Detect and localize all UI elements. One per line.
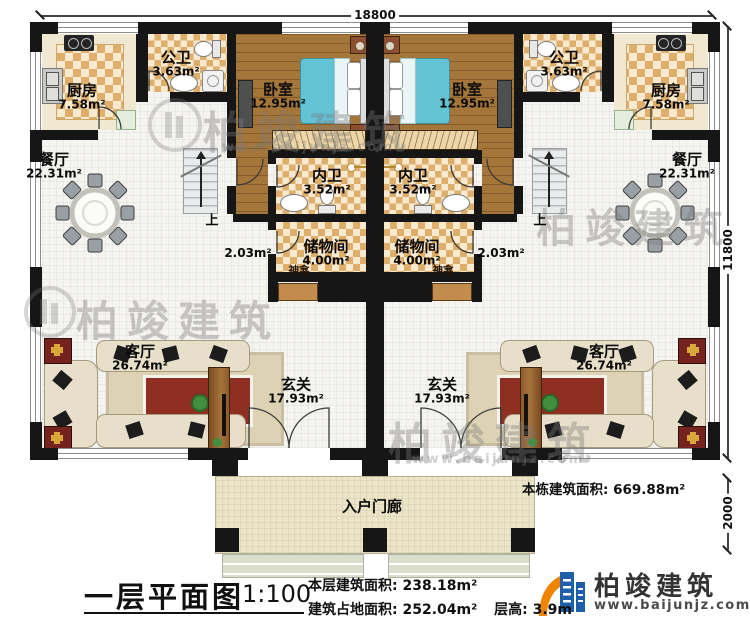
nightstand-icon [382,36,400,54]
double-door-arc [248,406,330,448]
site-area-label: 建筑占地面积: [308,602,398,618]
wall-segment [522,92,580,102]
wall-segment [268,222,276,230]
wall-segment [514,34,523,158]
wall-segment [268,272,366,282]
pillow [389,62,403,89]
porch-column [363,528,387,552]
side-table-icon [44,338,72,364]
watermark-url: www.baijunjz.com [412,452,585,467]
room-area: 26.74m² [112,360,168,373]
door-arc [450,230,474,254]
room-name: 客厅 [125,343,155,359]
door-arc [276,164,300,188]
room-area: 17.93m² [268,393,324,406]
toilet-tank [212,40,221,58]
window [30,52,42,130]
pillow [347,62,361,89]
burner-icon [68,38,79,49]
table-ornament [687,435,699,441]
entry-door-opening [248,448,330,460]
watermark-text: 柏竣建筑 [76,288,280,349]
lamp-icon [355,41,365,51]
watermark-bar [165,112,172,138]
table-ornament [51,347,63,353]
wall-segment [318,282,366,302]
wall-segment [602,34,614,102]
stairs-direction-line [200,155,202,207]
sofa-pillow [522,345,541,363]
room-name: 卧室 [452,81,482,97]
wall-segment [474,186,482,214]
wall-lamp-lead [354,166,366,168]
room-label-bedroom-right: 卧室12.95m² [439,81,495,110]
room-label-public-bath-left: 公卫3.63m² [152,49,199,78]
wall-segment [42,130,98,140]
shrine-label-right: 神龛 [433,263,454,278]
watermark-url: www.baijunjz.com [222,140,395,155]
site-area-value: 252.04m² [402,602,477,618]
tv-icon [222,394,226,436]
shrine-label-left: 神龛 [289,263,310,278]
window [58,448,188,460]
wall-segment [384,214,517,222]
door-arc [276,230,300,254]
table-ornament [687,347,699,353]
watermark-bar [40,299,47,324]
site-area-line: 建筑占地面积: 252.04m² 层高: 3.9m [308,599,572,619]
room-name: 餐厅 [672,151,702,167]
dimension-top-width: 18800 [351,8,399,22]
room-name: 储物间 [303,238,348,254]
burner-icon [658,38,669,49]
toilet-tank [318,205,336,214]
hall-area-label-left: 2.03m² [224,246,271,260]
window [612,22,692,34]
sofa-pillow [606,421,625,439]
room-name: 储物间 [394,238,439,254]
wall-party [375,22,384,460]
room-label-dining-right: 餐厅22.31m² [659,151,715,180]
window [282,22,360,34]
door-arc [236,158,264,186]
room-area: 22.31m² [26,168,82,181]
shrine-niche [278,283,318,301]
room-label-ensuite-left: 内卫3.52m² [303,167,350,196]
building-total-label: 本栋建筑面积: [522,482,608,498]
room-label-kitchen-right: 厨房7.58m² [642,82,689,111]
room-area: 12.95m² [439,98,495,111]
room-name: 公卫 [161,49,191,65]
window [390,22,468,34]
shrine-niche [432,283,472,301]
wall-segment [474,222,482,230]
room-name: 客厅 [589,343,619,359]
floor-area-label: 本层建筑面积: [308,578,398,594]
porch-label: 入户门廊 [342,496,402,517]
wall-segment [652,130,708,140]
wall-segment [227,186,236,214]
burner-icon [81,38,92,49]
sofa-pillow [52,370,72,390]
sofa-pillow [188,421,206,438]
room-label-foyer-right: 玄关17.93m² [414,376,470,405]
washbasin-icon [280,194,308,212]
porch-column [215,528,239,552]
floor-plan-canvas: 18800 11800 2000 厨房7.58m² 厨房7.58m² 公卫3.6… [0,0,750,629]
sink-bowl [691,72,704,86]
plant-icon [191,394,209,412]
story-height-value: 3.9m [533,602,572,618]
table-ornament [51,435,63,441]
room-area: 3.52m² [389,184,436,197]
room-label-bedroom-left: 卧室12.95m² [250,81,306,110]
plant-icon [213,438,222,447]
drawing-title: 一层平面图 [84,574,244,616]
kitchen-sink-icon [687,68,708,104]
door-arc [450,164,474,188]
room-area: 3.63m² [540,66,587,79]
wall-segment [472,282,482,302]
room-name: 玄关 [427,376,457,392]
stove-icon [656,35,686,51]
room-label-living-right: 客厅26.74m² [576,343,632,372]
stairs-up-label-left: 上 [205,210,218,229]
sink-bowl [691,87,704,101]
room-name: 玄关 [281,376,311,392]
sink-bowl [46,87,59,101]
tv-wall-panel [208,367,230,451]
stairs-up-arrow-icon [544,151,554,159]
porch-pilaster [362,460,388,476]
side-table-icon [678,338,706,364]
wall-segment [268,186,276,214]
room-name: 厨房 [651,82,681,98]
sofa-pillow [677,370,697,390]
room-name: 卧室 [263,81,293,97]
room-name: 餐厅 [39,151,69,167]
building-total-value: 669.88m² [613,482,685,498]
sink-bowl [46,72,59,86]
stove-icon [64,35,94,51]
wall-segment [136,34,148,102]
stairs-up-label-right: 上 [533,210,546,229]
watermark-logo-icon [24,286,76,338]
room-area: 3.52m² [303,184,350,197]
drawing-scale: 1:100 [242,580,311,608]
washbasin-icon [442,194,470,212]
hall-area-label-right: 2.03m² [477,246,524,260]
washer-icon [202,70,224,92]
company-website: www.baijunjz.com [594,598,750,613]
room-label-public-bath-right: 公卫3.63m² [540,49,587,78]
room-area: 22.31m² [659,168,715,181]
watermark-logo-icon [148,98,202,152]
window [708,52,720,130]
room-label-foyer-left: 玄关17.93m² [268,376,324,405]
wall-party [366,22,375,460]
sofa-pillow [125,421,144,439]
dining-table-set [54,172,136,254]
building-total-annotation: 本栋建筑面积: 669.88m² [522,478,685,498]
burner-icon [671,38,682,49]
room-label-kitchen-left: 厨房7.58m² [58,82,105,111]
wall-segment [233,214,366,222]
room-area: 17.93m² [414,393,470,406]
room-name: 公卫 [549,49,579,65]
wall-segment [474,158,482,164]
floor-area-line: 本层建筑面积: 238.18m² [308,575,477,595]
room-label-living-left: 客厅26.74m² [112,343,168,372]
dimension-porch-depth: 2000 [721,493,735,532]
wall-segment [384,282,432,302]
room-area: 12.95m² [250,98,306,111]
washer-door [207,75,219,87]
room-area: 7.58m² [642,99,689,112]
porch-pilaster [212,460,238,476]
room-name: 内卫 [398,167,428,183]
watermark-bar [51,303,58,324]
window [58,22,138,34]
lamp-icon [385,41,395,51]
window [30,327,42,422]
room-label-dining-left: 餐厅22.31m² [26,151,82,180]
toilet-tank [414,205,432,214]
window [708,327,720,422]
door-arc [486,158,514,186]
toilet-tank [529,40,538,58]
story-height-label: 层高: [494,602,528,618]
room-area: 3.63m² [152,66,199,79]
room-label-ensuite-right: 内卫3.52m² [389,167,436,196]
wall-segment [514,186,523,214]
bedroom-tv-panel [497,80,512,128]
room-area: 7.58m² [58,99,105,112]
watermark-bar [176,116,183,138]
room-area: 26.74m² [576,360,632,373]
room-name: 内卫 [312,167,342,183]
porch-column [511,528,535,552]
watermark-text: 柏竣建筑 [536,196,732,254]
floor-area-value: 238.18m² [402,578,477,594]
room-name: 厨房 [67,82,97,98]
